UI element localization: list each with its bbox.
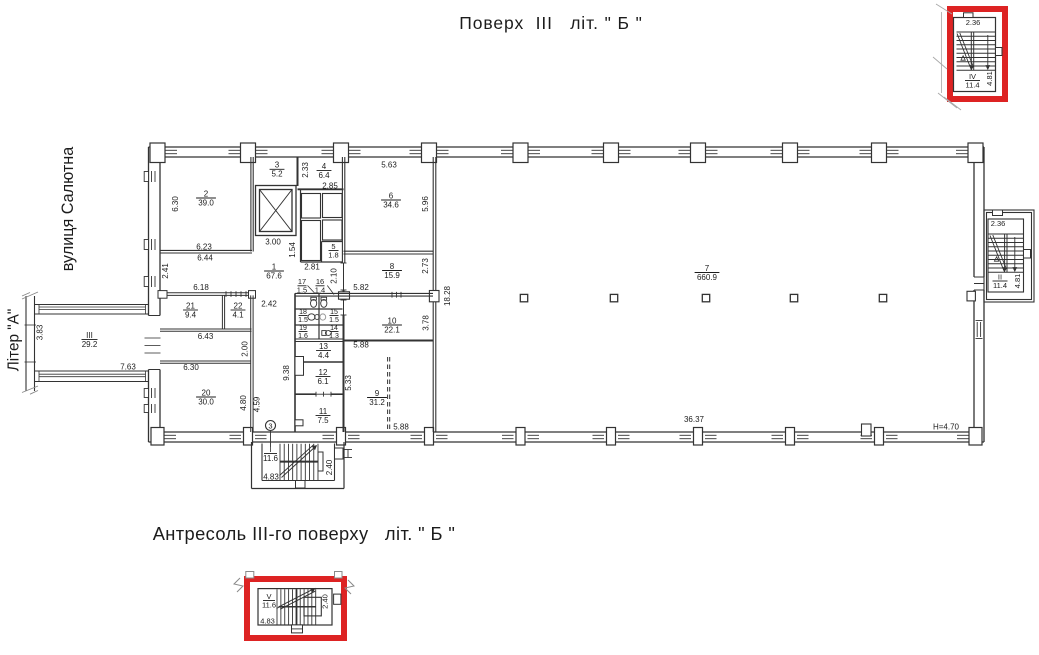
svg-text:3.00: 3.00 [265, 238, 281, 247]
svg-text:29.2: 29.2 [82, 340, 98, 349]
svg-text:7: 7 [705, 264, 710, 273]
svg-text:6.4: 6.4 [318, 171, 330, 180]
svg-text:4.81: 4.81 [1013, 274, 1022, 289]
svg-text:660.9: 660.9 [697, 273, 718, 282]
svg-text:Антресоль III-го поверху літ: Антресоль III-го поверху літ. " Б " [153, 523, 456, 544]
svg-text:6.43: 6.43 [198, 332, 214, 341]
svg-text:10: 10 [388, 316, 397, 325]
svg-text:22.1: 22.1 [384, 325, 400, 334]
svg-text:19: 19 [299, 325, 307, 332]
svg-text:5.33: 5.33 [344, 375, 353, 391]
svg-text:4.83: 4.83 [260, 617, 275, 626]
svg-text:2.40: 2.40 [325, 459, 334, 475]
svg-text:8: 8 [390, 262, 395, 271]
svg-text:2.40: 2.40 [321, 594, 330, 609]
svg-text:15: 15 [330, 309, 338, 316]
svg-text:Поверх III літ. " Б ": Поверх III літ. " Б " [459, 13, 642, 33]
svg-text:1.3: 1.3 [329, 333, 339, 340]
svg-text:2.41: 2.41 [161, 263, 170, 279]
svg-text:5.2: 5.2 [271, 170, 283, 179]
svg-text:2.73: 2.73 [421, 258, 430, 274]
svg-text:18.28: 18.28 [443, 285, 452, 306]
svg-text:11.6: 11.6 [263, 454, 279, 463]
svg-text:14: 14 [330, 325, 338, 332]
svg-text:4.4: 4.4 [318, 351, 330, 360]
svg-text:2.00: 2.00 [241, 341, 250, 357]
svg-text:7.5: 7.5 [317, 416, 329, 425]
svg-text:11: 11 [319, 407, 328, 416]
svg-text:6.1: 6.1 [317, 377, 329, 386]
svg-text:7.63: 7.63 [120, 363, 136, 372]
svg-text:5.88: 5.88 [393, 423, 409, 432]
svg-text:1: 1 [272, 262, 277, 271]
svg-text:6.30: 6.30 [183, 363, 199, 372]
svg-text:1.5: 1.5 [329, 317, 339, 324]
svg-text:1.5: 1.5 [298, 317, 308, 324]
svg-text:2.81: 2.81 [304, 263, 320, 272]
svg-text:3: 3 [268, 421, 272, 430]
svg-text:H=4.70: H=4.70 [933, 423, 960, 432]
svg-text:2.33: 2.33 [301, 162, 310, 178]
svg-text:3.78: 3.78 [422, 315, 431, 331]
svg-text:Літер "А": Літер "А" [6, 309, 23, 372]
svg-text:2.85: 2.85 [322, 181, 338, 190]
svg-text:13: 13 [319, 342, 328, 351]
svg-text:4.83: 4.83 [263, 473, 279, 482]
svg-text:67.6: 67.6 [266, 271, 282, 280]
svg-text:4.80: 4.80 [239, 395, 248, 411]
svg-text:34.6: 34.6 [383, 200, 399, 209]
svg-text:2: 2 [204, 189, 209, 198]
svg-text:9.38: 9.38 [282, 365, 291, 381]
svg-text:2.36: 2.36 [991, 219, 1006, 228]
svg-text:3: 3 [275, 161, 280, 170]
svg-text:5.88: 5.88 [353, 341, 369, 350]
svg-text:1.6: 1.6 [298, 333, 308, 340]
svg-text:18: 18 [299, 309, 307, 316]
svg-text:15.9: 15.9 [384, 271, 400, 280]
svg-text:11.6: 11.6 [262, 600, 276, 609]
svg-text:1.8: 1.8 [328, 250, 338, 259]
svg-text:6.18: 6.18 [193, 283, 209, 292]
svg-text:6.23: 6.23 [196, 242, 212, 251]
svg-text:9.4: 9.4 [185, 310, 197, 319]
svg-text:11.4: 11.4 [993, 281, 1007, 290]
svg-text:1.4: 1.4 [315, 286, 325, 295]
svg-text:22: 22 [234, 301, 243, 310]
svg-text:20: 20 [202, 388, 211, 397]
svg-text:6: 6 [389, 191, 394, 200]
svg-text:9: 9 [375, 389, 380, 398]
svg-text:6.44: 6.44 [197, 253, 213, 262]
svg-text:3.83: 3.83 [36, 324, 45, 340]
svg-text:4.1: 4.1 [232, 310, 244, 319]
svg-text:5.63: 5.63 [381, 161, 397, 170]
svg-text:III: III [86, 331, 93, 340]
svg-text:2.36: 2.36 [966, 18, 981, 27]
svg-text:1.5: 1.5 [297, 286, 307, 295]
svg-text:5.82: 5.82 [353, 283, 369, 292]
svg-text:5.96: 5.96 [421, 196, 430, 212]
svg-text:39.0: 39.0 [198, 198, 214, 207]
svg-text:4.59: 4.59 [253, 396, 262, 412]
svg-text:11.4: 11.4 [965, 80, 979, 89]
svg-text:вулиця Салютна: вулиця Салютна [59, 147, 77, 271]
svg-text:21: 21 [186, 301, 195, 310]
svg-text:36.37: 36.37 [684, 415, 705, 424]
svg-text:4.81: 4.81 [985, 71, 994, 86]
svg-text:4: 4 [322, 162, 327, 171]
svg-text:2.42: 2.42 [261, 300, 277, 309]
svg-text:6.30: 6.30 [171, 196, 180, 212]
svg-text:1.54: 1.54 [288, 242, 297, 258]
svg-text:31.2: 31.2 [369, 398, 385, 407]
svg-text:30.0: 30.0 [198, 397, 214, 406]
svg-text:12: 12 [319, 368, 328, 377]
svg-text:2.10: 2.10 [330, 268, 339, 284]
